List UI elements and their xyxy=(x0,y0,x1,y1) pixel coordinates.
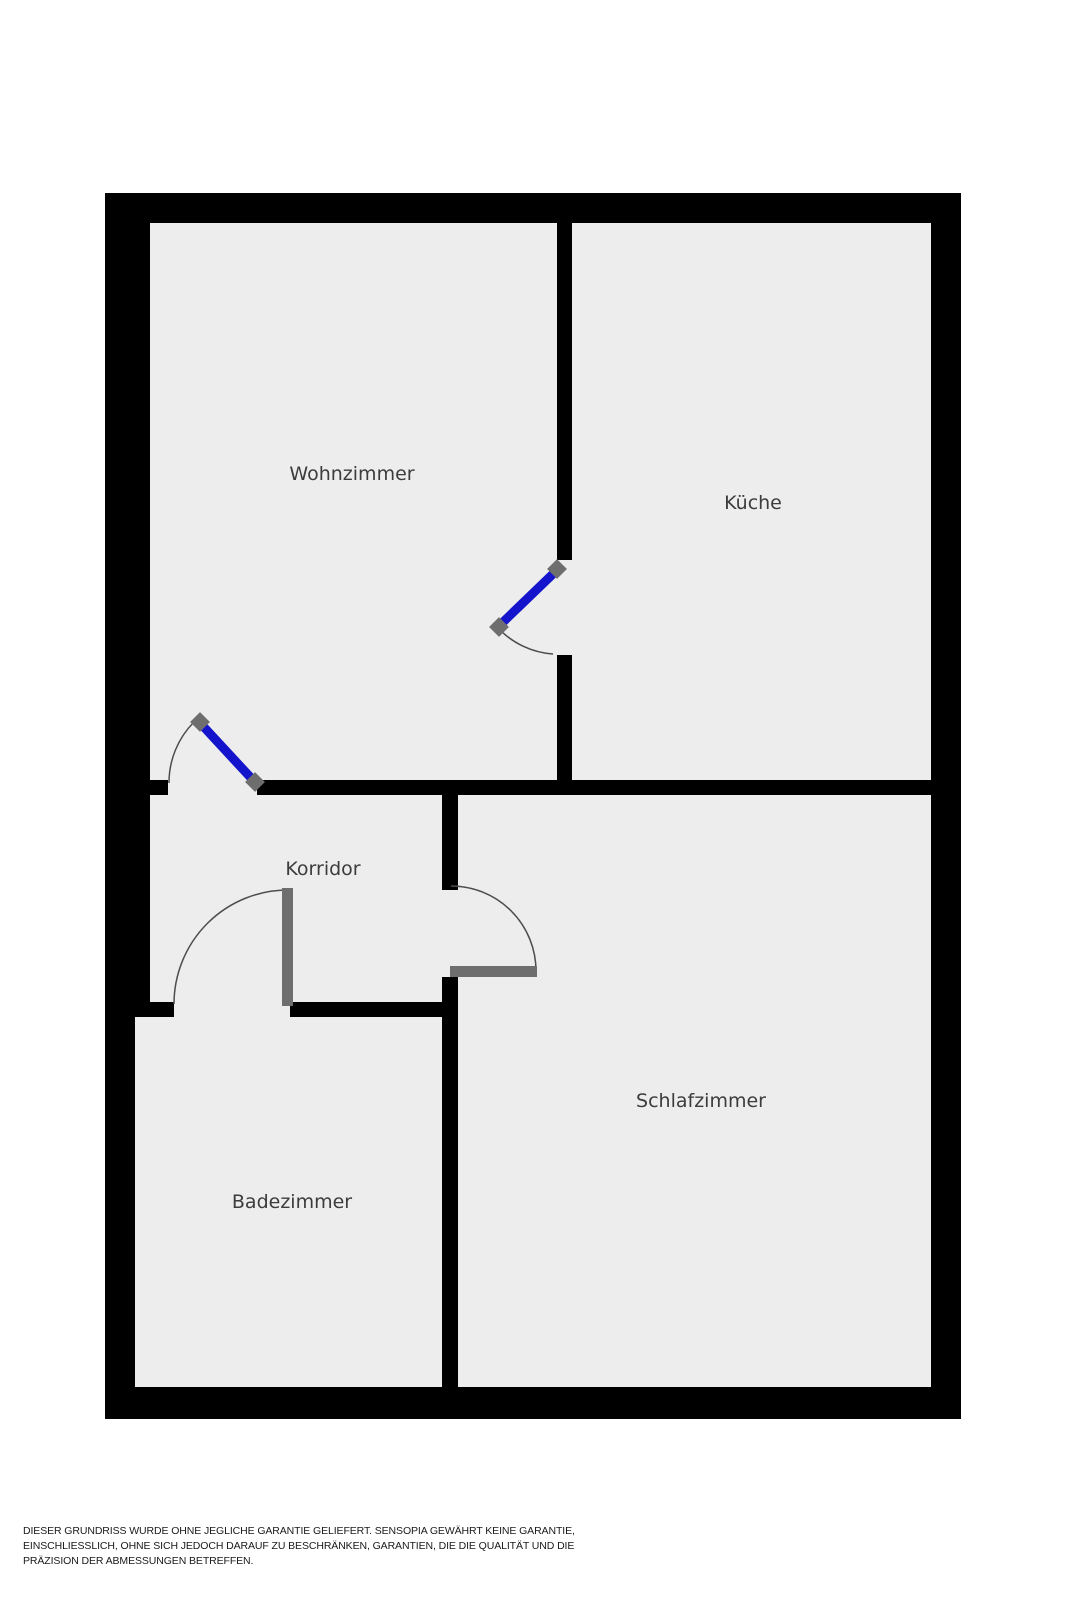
door-swing-arc-wohnzimmer-korridor xyxy=(169,722,194,783)
door-leaf-schlafzimmer xyxy=(450,966,537,977)
room-label-korridor: Korridor xyxy=(285,858,360,880)
door-swing-arc-wohnzimmer-kueche xyxy=(498,628,553,654)
floor-plan: Wohnzimmer Küche Korridor Badezimmer Sch… xyxy=(0,0,1067,1600)
room-label-wohnzimmer: Wohnzimmer xyxy=(289,463,414,485)
door-leaf-wohnzimmer-korridor xyxy=(202,725,252,779)
door-leaf-badezimmer xyxy=(282,888,293,1006)
room-label-schlafzimmer: Schlafzimmer xyxy=(636,1090,766,1112)
disclaimer-text: DIESER GRUNDRISS WURDE OHNE JEGLICHE GAR… xyxy=(23,1524,543,1569)
room-label-kueche: Küche xyxy=(724,492,782,514)
disclaimer-line: PRÄZISION DER ABMESSUNGEN BETREFFEN. xyxy=(23,1554,543,1569)
door-swing-arc-badezimmer xyxy=(174,890,288,1004)
door-swing-arc-schlafzimmer xyxy=(451,886,536,971)
room-label-badezimmer: Badezimmer xyxy=(232,1191,352,1213)
door-leaf-wohnzimmer-kueche xyxy=(500,572,555,625)
doors-overlay xyxy=(0,0,1067,1600)
disclaimer-line: DIESER GRUNDRISS WURDE OHNE JEGLICHE GAR… xyxy=(23,1524,543,1539)
disclaimer-line: EINSCHLIESSLICH, OHNE SICH JEDOCH DARAUF… xyxy=(23,1539,543,1554)
